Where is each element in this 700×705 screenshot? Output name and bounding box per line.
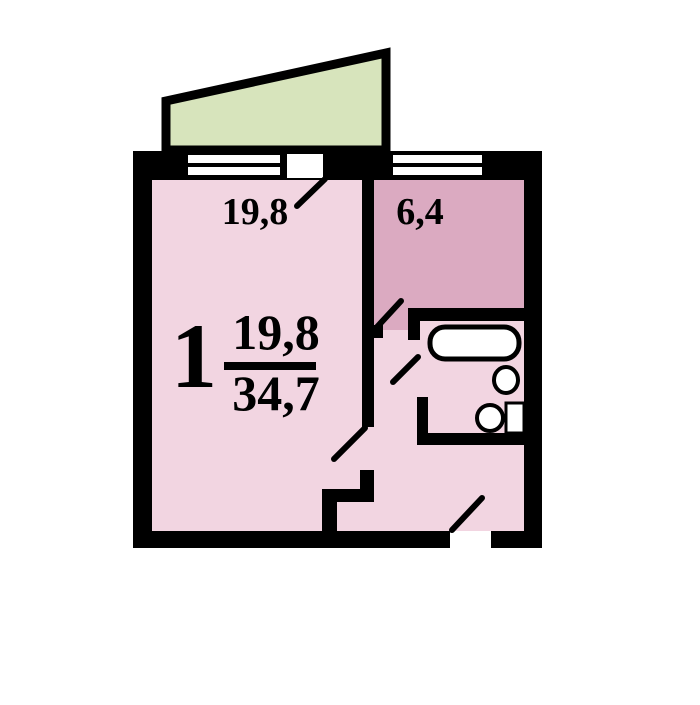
kitchen-window-strip-1 <box>393 155 482 163</box>
balcony-door-threshold <box>287 154 323 178</box>
toilet-bowl-icon <box>477 405 503 431</box>
toilet-tank-icon <box>506 403 524 433</box>
floor-plan: 19,8 6,4 1 19,8 34,7 <box>0 0 700 700</box>
kitchen-area-label: 6,4 <box>396 191 444 233</box>
niche-wall-downright <box>322 489 337 531</box>
total-area-denominator: 34,7 <box>232 365 320 421</box>
living-room-window-strip-1 <box>188 155 280 163</box>
living-area-numerator: 19,8 <box>232 304 320 360</box>
bathroom-wall-top <box>408 308 524 321</box>
outer-wall-right <box>524 151 542 548</box>
bathroom-wall-bottom <box>417 433 524 445</box>
outer-wall-bottom-left <box>133 531 450 548</box>
outer-wall-left <box>133 151 152 548</box>
bathroom-door-jamb <box>408 321 420 340</box>
bathtub-icon <box>430 327 519 359</box>
floor-plan-canvas: 19,8 6,4 1 19,8 34,7 <box>0 0 700 700</box>
rooms-count-label: 1 <box>171 305 217 407</box>
living-room-area-label: 19,8 <box>222 191 289 233</box>
living-room-window-strip-2 <box>188 167 280 175</box>
interior-wall-living <box>362 180 374 427</box>
outer-wall-bottom-right <box>491 531 542 548</box>
kitchen-window-strip-2 <box>393 167 482 175</box>
sink-icon <box>494 367 518 393</box>
